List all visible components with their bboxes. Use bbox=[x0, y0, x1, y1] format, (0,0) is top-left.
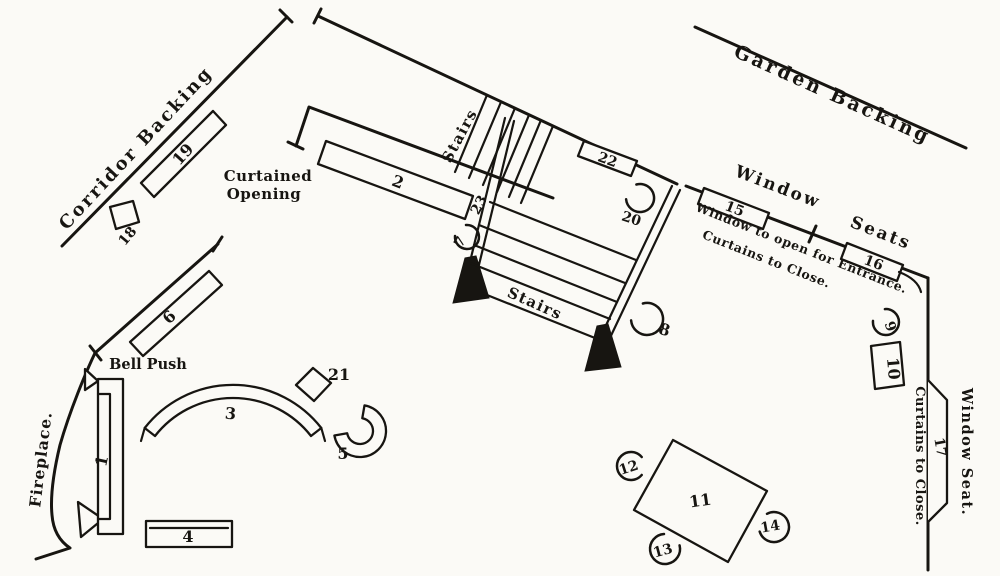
stair-tread bbox=[490, 202, 636, 260]
stair-tread bbox=[509, 120, 541, 197]
curtained-opening-label-1: Curtained bbox=[224, 167, 313, 185]
bell-push-label: Bell Push bbox=[109, 356, 187, 373]
item-number-5: 5 bbox=[337, 444, 348, 463]
table-18 bbox=[110, 201, 139, 229]
banister-right bbox=[600, 186, 672, 338]
curtained-opening-label-2: Opening bbox=[227, 185, 302, 203]
sideboard-6 bbox=[130, 271, 222, 356]
fireplace-jamb-upper bbox=[85, 369, 98, 390]
text-labels: Corridor Backing Garden Backing Curtaine… bbox=[25, 41, 975, 526]
item-number-3: 3 bbox=[224, 404, 237, 424]
settee-3-endcap bbox=[141, 428, 145, 441]
settee-3-endcap bbox=[321, 428, 325, 441]
item-number-13: 13 bbox=[651, 541, 674, 561]
item-number-17: 17 bbox=[930, 436, 949, 458]
stage-plan: Corridor Backing Garden Backing Curtaine… bbox=[0, 0, 1000, 576]
banister-right bbox=[608, 190, 680, 342]
item-number-21: 21 bbox=[328, 365, 350, 384]
garden-backing-label: Garden Backing bbox=[731, 41, 935, 149]
newel-post-right bbox=[585, 324, 621, 371]
stool-21 bbox=[296, 368, 331, 401]
item-number-12: 12 bbox=[617, 458, 640, 479]
chair-20 bbox=[626, 184, 654, 212]
window-seat-label: Window Seat. bbox=[958, 387, 975, 516]
item-number-11: 11 bbox=[688, 490, 713, 512]
stairs-upper-label: Stairs bbox=[438, 106, 481, 166]
curtains-close-label: Curtains to Close. bbox=[912, 386, 927, 526]
item-number-10: 10 bbox=[883, 357, 904, 381]
corridor-backing-wall bbox=[62, 17, 287, 246]
item-number-14: 14 bbox=[759, 517, 781, 536]
item-number-8: 8 bbox=[657, 319, 673, 340]
staircase bbox=[453, 95, 680, 371]
item-number-4: 4 bbox=[182, 527, 193, 546]
inner-wall-top-tick bbox=[213, 237, 222, 251]
